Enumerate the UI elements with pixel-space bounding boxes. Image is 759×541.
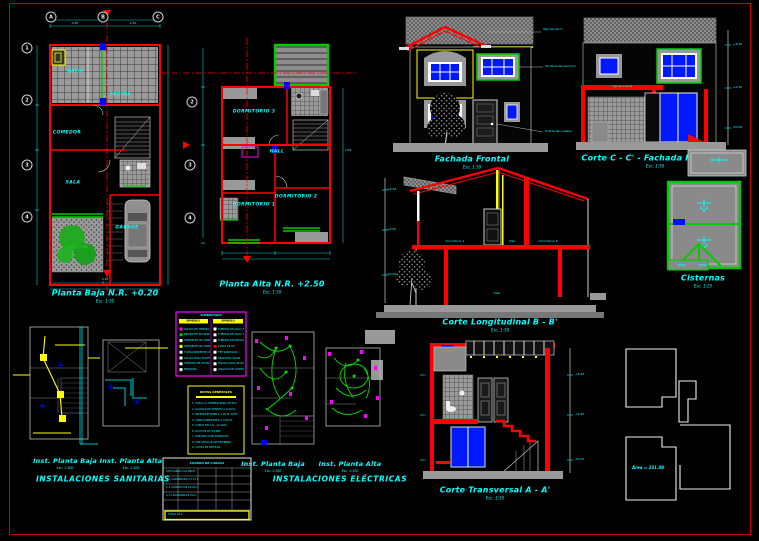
level-value: ±0.00: [387, 272, 396, 276]
legend-item: TABLERO DE DISTRIBUCION: [184, 362, 210, 365]
level-value: +2.50: [575, 412, 584, 416]
nota-line: 8. VER DETALLE DE CISTERNA.: [192, 441, 242, 444]
grid-bubble-a: A: [46, 12, 57, 23]
room-label-dormitorio1: DORMITORIO 1: [233, 203, 276, 208]
key-plan-drawing: Área = 231.08: [612, 345, 759, 507]
nota-line: 5. CABLE TW CAL. 12 AWG.: [192, 424, 242, 427]
planta-alta-linework: [183, 38, 358, 300]
level-value: +2.50: [387, 227, 396, 231]
annotation-window: Ventana de aluminio: [545, 64, 576, 68]
level-value: ±0.00: [575, 457, 584, 461]
legend-item: INTERRUPTOR CONMUTADO: [184, 345, 210, 348]
nota-line: 6. DUCTOS DE 13 MM.: [192, 430, 242, 433]
room-label-hall: HALL: [270, 150, 285, 155]
cisternas-title: Cisternas: [681, 274, 725, 283]
level-value: +5.46: [733, 42, 742, 46]
planta-baja-linework: [15, 8, 185, 308]
sanitarias-left-scale: Esc. 1:100: [57, 466, 74, 470]
annotation-roof: Teja de barro: [543, 27, 563, 31]
sanitarias-left-title: Inst. Planta Baja: [33, 457, 97, 465]
grid-bubble-2: 2: [22, 95, 33, 106]
room-label-dormitorio1: Dormitorio 1: [446, 239, 465, 243]
corte-transversal-scale: Esc. 1:50: [486, 496, 504, 501]
room-label-patio: PATIO: [68, 70, 85, 75]
level-value: +2.50: [733, 85, 742, 89]
legend-block: SIMBOLOGIA SIMBOLO SIMBOLO SALIDA DE CEN…: [158, 308, 260, 538]
level-value: +5.46: [387, 187, 396, 191]
cad-sheet: A B C 1 2 3 4 2.85 2.50 5.35 PATIO COCIN…: [0, 0, 759, 541]
corte-transversal-drawing: +5.46 +2.50 ±0.00 Corte Transversal A - …: [418, 333, 610, 508]
cuadro-title: CUADRO DE CARGAS: [190, 461, 225, 465]
corte-transversal-title: Corte Transversal A - A': [440, 486, 551, 495]
notas-title: NOTAS GENERALES: [200, 390, 232, 394]
planta-baja-title: Planta Baja N.R. +0.20: [52, 289, 159, 298]
nota-line: 7. TABLERO CON TERMICOS.: [192, 435, 242, 438]
grid-bubble-c: C: [153, 12, 164, 23]
inst-sanitarias-drawing: Inst. Planta Baja Esc. 1:100 Inst. Plant…: [13, 318, 171, 490]
dim-value: 2.85: [72, 21, 79, 25]
planta-alta-title: Planta Alta N.R. +2.50: [219, 280, 324, 289]
electricas-right-title: Inst. Planta Alta: [319, 460, 382, 468]
electricas-left-scale: Esc. 1:100: [265, 469, 282, 473]
sanitarias-main-title: INSTALACIONES SANITARIAS: [36, 475, 170, 484]
legend-item: INTERRUPTOR SIMPLE: [184, 339, 210, 342]
electricas-left-title: Inst. Planta Baja: [241, 460, 305, 468]
room-label-cocina: COCINA: [109, 93, 131, 98]
grid-bubble-4: 4: [22, 212, 33, 223]
grid-bubble-1: 1: [22, 43, 33, 54]
dim-value: 5.35: [102, 277, 109, 281]
simbologia-title: SIMBOLOGIA: [200, 313, 221, 317]
level-value: +5.46: [575, 372, 584, 376]
planta-alta-scale: Esc. 1:50: [263, 290, 281, 295]
level-value: ±0.00: [733, 125, 742, 129]
room-label-garage: GARAGE: [115, 226, 138, 231]
corte-longitudinal-linework: [376, 163, 614, 338]
room-label-sala: Sala: [494, 291, 500, 295]
simbologia-right-header: SIMBOLO: [221, 320, 234, 323]
grid-bubble-3: 3: [22, 160, 33, 171]
corte-transversal-linework: [418, 333, 610, 508]
legend-item: TOMACORRIENTE DOBLE: [184, 351, 210, 354]
nota-line: 2. SALIDAS DE CENTRO A 2.40 M.: [192, 408, 242, 411]
room-label-dormitorio2: DORMITORIO 2: [275, 195, 318, 200]
legend-linework: [158, 308, 260, 538]
beam-label: Viga de amarre: [612, 85, 632, 88]
nota-line: 9. COTAS EN METROS.: [192, 446, 242, 449]
room-label-jardin: JARDIN: [68, 246, 88, 251]
planta-baja-drawing: A B C 1 2 3 4 2.85 2.50 5.35 PATIO COCIN…: [15, 8, 185, 308]
cisternas-drawing: Cisternas Esc. 1:25: [655, 148, 757, 294]
room-label-comedor: COMEDOR: [53, 131, 82, 136]
nota-line: 3. INTERRUPTORES A 1.20 M. N.P.T.: [192, 413, 242, 416]
legend-item: TEE SANITARIA: [218, 351, 244, 354]
legend-item: SALIDA DE CENTRO: [184, 328, 210, 331]
room-label-dormitorio3: Dormitorio 3: [539, 239, 558, 243]
planta-baja-scale: Esc. 1:50: [96, 299, 114, 304]
nota-line: 4. TOMACORRIENTES A 0.40 M.: [192, 419, 242, 422]
legend-item: TUBERIA DE AGUA CALIENTE: [218, 333, 244, 336]
legend-item: BAJADA AGUA PLUVIAL: [218, 362, 244, 365]
area-label: Área = 231.08: [632, 465, 664, 470]
legend-item: SALIDA PARA TELEFONO: [184, 357, 210, 360]
nota-line: 1. TODA LA TUBERIA SERA DE PVC.: [192, 402, 242, 405]
grid-bubble-b: B: [98, 12, 109, 23]
room-label-sala: SALA: [66, 181, 81, 186]
room-label-hall: Hall: [509, 239, 515, 243]
cuadro-row: C-2 CONTACTOS 12 20 A: [166, 486, 248, 489]
legend-item: MEDIDOR: [184, 368, 210, 371]
cuadro-row: C-1 ALUMBRADO 12 15 A: [166, 478, 248, 481]
electricas-main-title: INSTALACIONES ELÉCTRICAS: [273, 475, 408, 484]
simbologia-left-header: SIMBOLO: [186, 320, 199, 323]
planta-alta-drawing: 2 3 4 7.60 DORMITORIO 3 HALL DORMITORIO …: [183, 38, 358, 300]
dim-value: 7.60: [345, 148, 352, 152]
dim-value: 2.50: [130, 21, 137, 25]
cuadro-header: CTO CARGA CAL PROT: [166, 470, 248, 473]
key-plan-linework: [612, 345, 759, 507]
sanitarias-right-title: Inst. Planta Alta: [100, 457, 163, 465]
grid-bubble-3: 3: [185, 160, 196, 171]
annotation-door: Puerta de madera: [545, 129, 572, 133]
grid-bubble-2: 2: [187, 97, 198, 108]
corte-longitudinal-scale: Esc. 1:50: [491, 328, 509, 333]
fachada-frontal-drawing: Teja de barro Ventana de aluminio Puerta…: [393, 12, 573, 172]
room-label-dormitorio3: DORMITORIO 3: [233, 110, 276, 115]
corte-longitudinal-title: Corte Longitudinal B - B': [442, 318, 557, 327]
fachada-frontal-linework: [393, 12, 573, 172]
corte-longitudinal-drawing: +5.46 +2.50 ±0.00 Dormitorio 1 Hall Dorm…: [376, 163, 614, 338]
legend-item: TUBERIA DE DESAGUE: [218, 339, 244, 342]
cuadro-total: TOTAL 65 A: [168, 513, 248, 516]
cisternas-scale: Esc. 1:25: [694, 284, 712, 289]
legend-item: CODO DE 90: [218, 345, 244, 348]
electricas-right-scale: Esc. 1:100: [342, 469, 359, 473]
sanitarias-right-scale: Esc. 1:100: [123, 466, 140, 470]
legend-item: BRAQUETE EN MURO: [184, 333, 210, 336]
cisternas-linework: [655, 148, 757, 294]
legend-item: VALVULA DE CONTROL: [218, 368, 244, 371]
cuadro-row: C-3 LAVADORA 10 30 A: [166, 494, 248, 497]
grid-bubble-4: 4: [185, 213, 196, 224]
legend-item: TUBERIA DE AGUA FRIA: [218, 328, 244, 331]
inst-electricas-drawing: Inst. Planta Baja Esc. 1:100 Inst. Plant…: [246, 328, 414, 488]
legend-item: REGISTRO 40x60: [218, 357, 244, 360]
